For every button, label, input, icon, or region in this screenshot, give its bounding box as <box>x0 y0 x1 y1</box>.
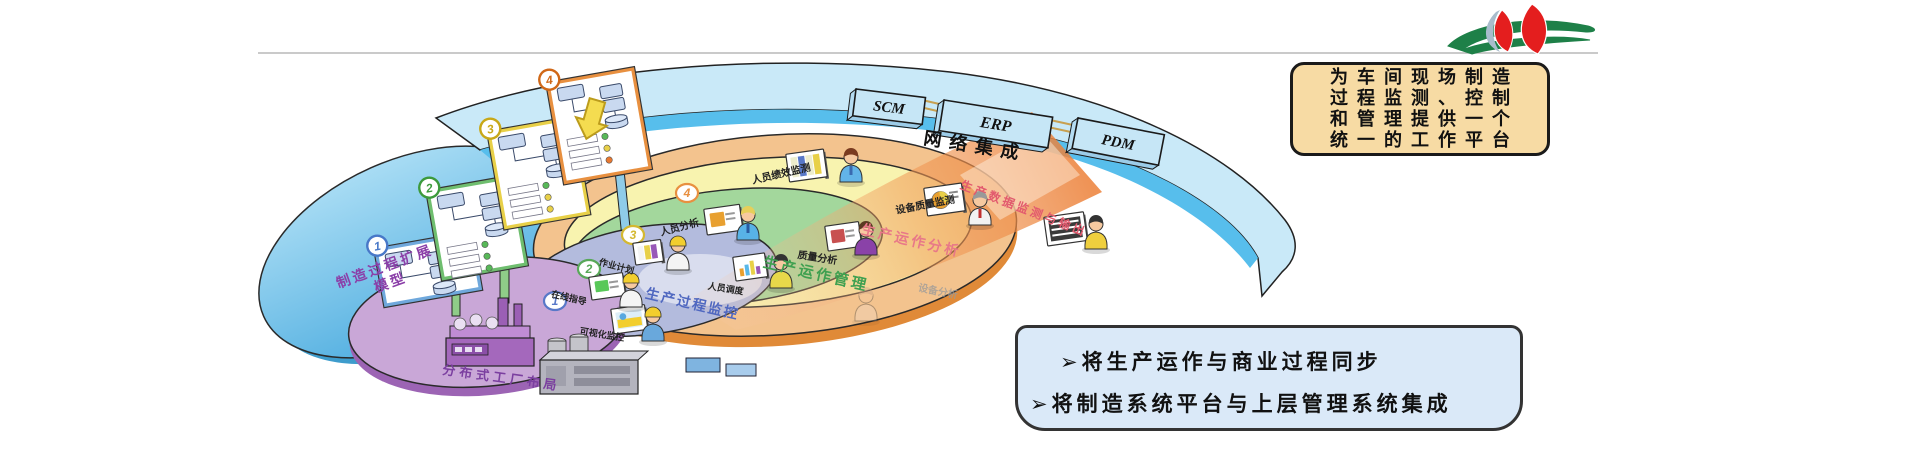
platform-callout: 为车间现场制造 过程监测、控制 和管理提供一个 统一的工作平台 <box>1290 62 1550 156</box>
layer-badge-3: 3 <box>622 226 644 244</box>
bullet-icon: ➢ <box>1060 351 1082 374</box>
integration-bullet-1-text: 将生产运作与商业过程同步 <box>1082 351 1382 374</box>
organization-logo <box>1448 4 1595 54</box>
platform-callout-line: 过程监测、控制 <box>1321 88 1519 109</box>
integration-bullet-2-text: 将制造系统平台与上层管理系统集成 <box>1052 393 1452 416</box>
platform-callout-line: 和管理提供一个 <box>1321 109 1519 130</box>
svg-text:2: 2 <box>585 262 593 276</box>
svg-text:3: 3 <box>630 228 637 242</box>
bullet-icon: ➢ <box>1030 393 1052 416</box>
integration-callout: ➢将生产运作与商业过程同步 ➢将制造系统平台与上层管理系统集成 <box>1015 325 1523 431</box>
platform-callout-line: 统一的工作平台 <box>1321 130 1519 151</box>
svg-text:4: 4 <box>683 186 691 200</box>
platform-diagram: 1234 SCM ERP PDM 4321 <box>0 0 1920 460</box>
layer-badge-4: 4 <box>676 184 698 202</box>
layer-badge-2: 2 <box>578 260 600 278</box>
platform-callout-line: 为车间现场制造 <box>1321 67 1519 88</box>
slide-canvas: { "slide": { "bg": "#ffffff", "rule_colo… <box>0 0 1920 460</box>
conveyor-equipment-icon <box>686 358 756 376</box>
integration-bullet-2: ➢将制造系统平台与上层管理系统集成 <box>1030 388 1512 418</box>
logo-petal-right <box>1521 4 1546 54</box>
integration-bullet-1: ➢将生产运作与商业过程同步 <box>1030 346 1512 376</box>
